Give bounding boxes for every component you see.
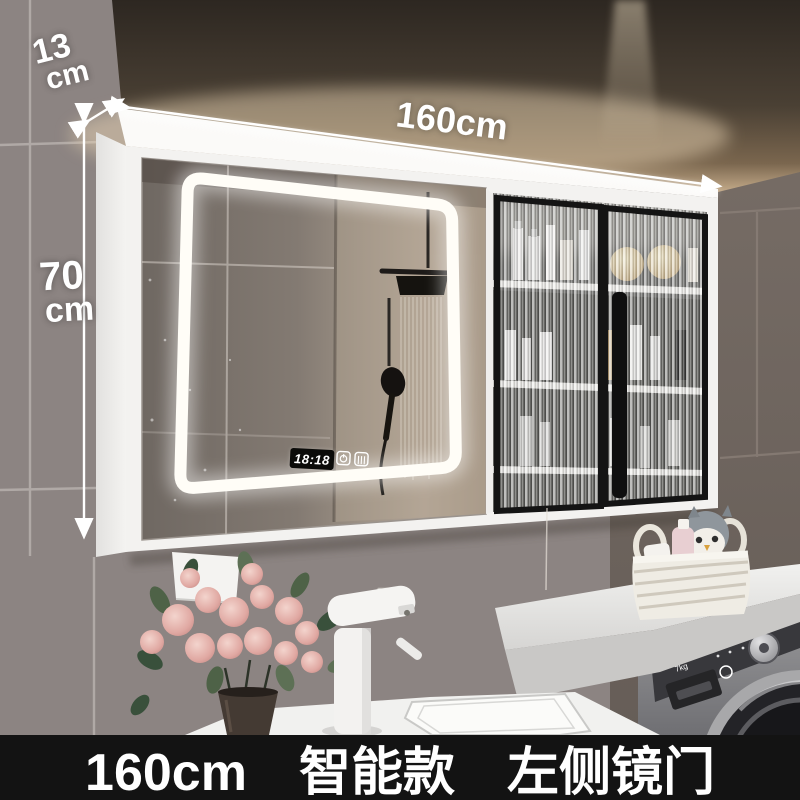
height-unit: cm [40,293,95,327]
height-dimension-label: 70 cm [38,257,95,328]
caption-text: 160cm 智能款 左侧镜门 [85,730,715,800]
product-photo: 7kg [0,0,800,800]
clock-display: 18:18 [290,448,335,470]
caption-bar: 160cm 智能款 左侧镜门 [0,735,800,800]
